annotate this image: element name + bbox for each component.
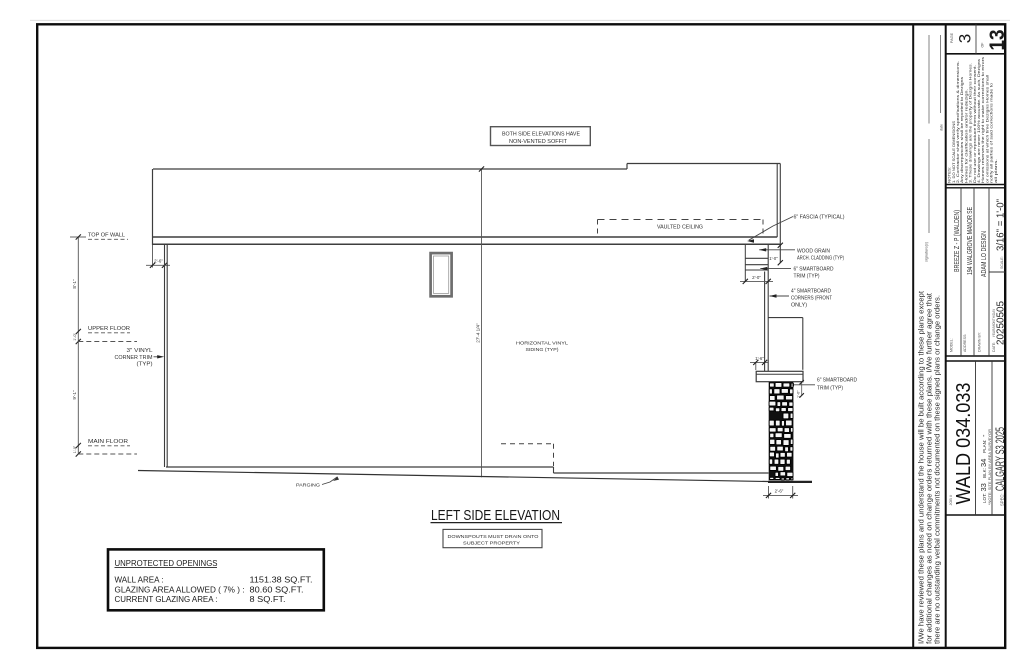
- svg-text:TRIM (TYP): TRIM (TYP): [794, 274, 820, 280]
- svg-text:3: 3: [956, 34, 975, 43]
- svg-text:CURRENT GLAZING AREA :: CURRENT GLAZING AREA :: [115, 595, 218, 604]
- svg-text:NON-VENTED SOFFIT: NON-VENTED SOFFIT: [509, 139, 567, 145]
- svg-text:GLAZING AREA ALLOWED ( 7% ) :: GLAZING AREA ALLOWED ( 7% ) :: [115, 585, 245, 594]
- svg-text:TRIM (TYP): TRIM (TYP): [817, 386, 843, 392]
- svg-text:6" FASCIA (TYPICAL): 6" FASCIA (TYPICAL): [794, 215, 845, 221]
- svg-text:20250505: 20250505: [994, 301, 1006, 345]
- svg-text:WOOD GRAIN: WOOD GRAIN: [797, 249, 830, 255]
- svg-text:MAIN FLOOR: MAIN FLOOR: [88, 439, 128, 445]
- svg-text:9'-1": 9'-1": [72, 390, 77, 400]
- svg-text:6" SMARTBOARD: 6" SMARTBOARD: [794, 267, 834, 273]
- svg-text:3" VINYL: 3" VINYL: [127, 348, 153, 354]
- svg-text:1151.38 SQ.FT.: 1151.38 SQ.FT.: [250, 575, 313, 584]
- svg-text:1'-0": 1'-0": [769, 256, 778, 261]
- svg-text:DRAWN BY:: DRAWN BY:: [978, 332, 982, 352]
- svg-text:LEFT SIDE ELEVATION: LEFT SIDE ELEVATION: [431, 507, 560, 524]
- svg-text:SCALE:: SCALE:: [1000, 256, 1004, 269]
- svg-text:VAULTED CEILING: VAULTED CEILING: [657, 225, 703, 231]
- svg-text:*NOTE: SITE PLAN BY AREA SURVE: *NOTE: SITE PLAN BY AREA SURVEYOR: [987, 429, 992, 505]
- svg-text:4" SMARTBOARD: 4" SMARTBOARD: [791, 289, 831, 295]
- svg-text:WALL AREA :: WALL AREA :: [115, 575, 164, 584]
- svg-text:ADDRESS:: ADDRESS:: [963, 334, 967, 352]
- svg-text:SIDING (TYP): SIDING (TYP): [526, 347, 559, 353]
- svg-text:ARCH. CLADDING (TYP): ARCH. CLADDING (TYP): [797, 256, 844, 262]
- svg-text:1'-6": 1'-6": [755, 356, 764, 361]
- svg-text:SUBJECT PROPERTY: SUBJECT PROPERTY: [463, 541, 521, 547]
- svg-text:1'-0": 1'-0": [797, 390, 801, 398]
- svg-text:TOP OF WALL: TOP OF WALL: [88, 232, 125, 238]
- svg-text:UNPROTECTED OPENINGS: UNPROTECTED OPENINGS: [115, 559, 218, 568]
- svg-text:signature(s): signature(s): [924, 241, 928, 262]
- svg-text:HORIZONTAL VINYL: HORIZONTAL VINYL: [516, 341, 568, 347]
- svg-text:all plans.: all plans.: [994, 159, 998, 183]
- svg-text:CORNER TRIM: CORNER TRIM: [115, 355, 153, 361]
- svg-text:194 WALGROVE MANOR SE: 194 WALGROVE MANOR SE: [965, 207, 974, 275]
- svg-text:UPPER FLOOR: UPPER FLOOR: [88, 326, 130, 332]
- svg-text:1'-0": 1'-0": [73, 333, 77, 341]
- svg-text:date: date: [940, 124, 944, 131]
- svg-text:3/16" = 1'-0": 3/16" = 1'-0": [996, 198, 1007, 251]
- svg-text:(TYP): (TYP): [137, 362, 153, 368]
- svg-text:MODEL:: MODEL:: [950, 338, 954, 352]
- svg-text:CALGARY S3 2025: CALGARY S3 2025: [993, 427, 1007, 491]
- svg-text:BOTH SIDE ELEVATIONS HAVE: BOTH SIDE ELEVATIONS HAVE: [502, 132, 580, 138]
- svg-text:DOWNSPOUTS MUST DRAIN ONTO: DOWNSPOUTS MUST DRAIN ONTO: [448, 534, 539, 540]
- svg-text:8'-1": 8'-1": [72, 279, 77, 289]
- svg-text:WALD 034.033: WALD 034.033: [953, 383, 975, 505]
- svg-text:6" SMARTBOARD: 6" SMARTBOARD: [817, 378, 857, 384]
- svg-text:ONLY): ONLY): [791, 303, 807, 309]
- svg-text:ADAM LO DESIGN: ADAM LO DESIGN: [979, 231, 988, 277]
- svg-text:8 SQ.FT.: 8 SQ.FT.: [250, 595, 286, 604]
- svg-text:CORNERS (FRONT: CORNERS (FRONT: [791, 296, 833, 302]
- svg-text:2'-6": 2'-6": [154, 259, 163, 264]
- svg-text:BREEZE Z - P (WALDEN): BREEZE Z - P (WALDEN): [952, 210, 961, 272]
- svg-text:13: 13: [985, 29, 1009, 50]
- svg-text:2'-6": 2'-6": [775, 489, 784, 494]
- svg-text:27'-4 1/4": 27'-4 1/4": [476, 323, 481, 343]
- svg-text:SPEC:: SPEC:: [999, 493, 1004, 506]
- svg-text:I/We have reviewed these plans: I/We have reviewed these plans and under…: [917, 291, 925, 644]
- svg-text:1'-0": 1'-0": [73, 445, 77, 453]
- svg-text:80.60 SQ.FT.: 80.60 SQ.FT.: [250, 585, 304, 594]
- svg-text:there are no outstanding verba: there are no outstanding verbal commitme…: [933, 295, 941, 644]
- svg-text:PARGING: PARGING: [296, 483, 320, 488]
- svg-text:for additional changes as note: for additional changes as noted on chang…: [925, 293, 933, 644]
- svg-text:2'-0": 2'-0": [752, 275, 761, 280]
- svg-text:PAGE: PAGE: [950, 32, 954, 43]
